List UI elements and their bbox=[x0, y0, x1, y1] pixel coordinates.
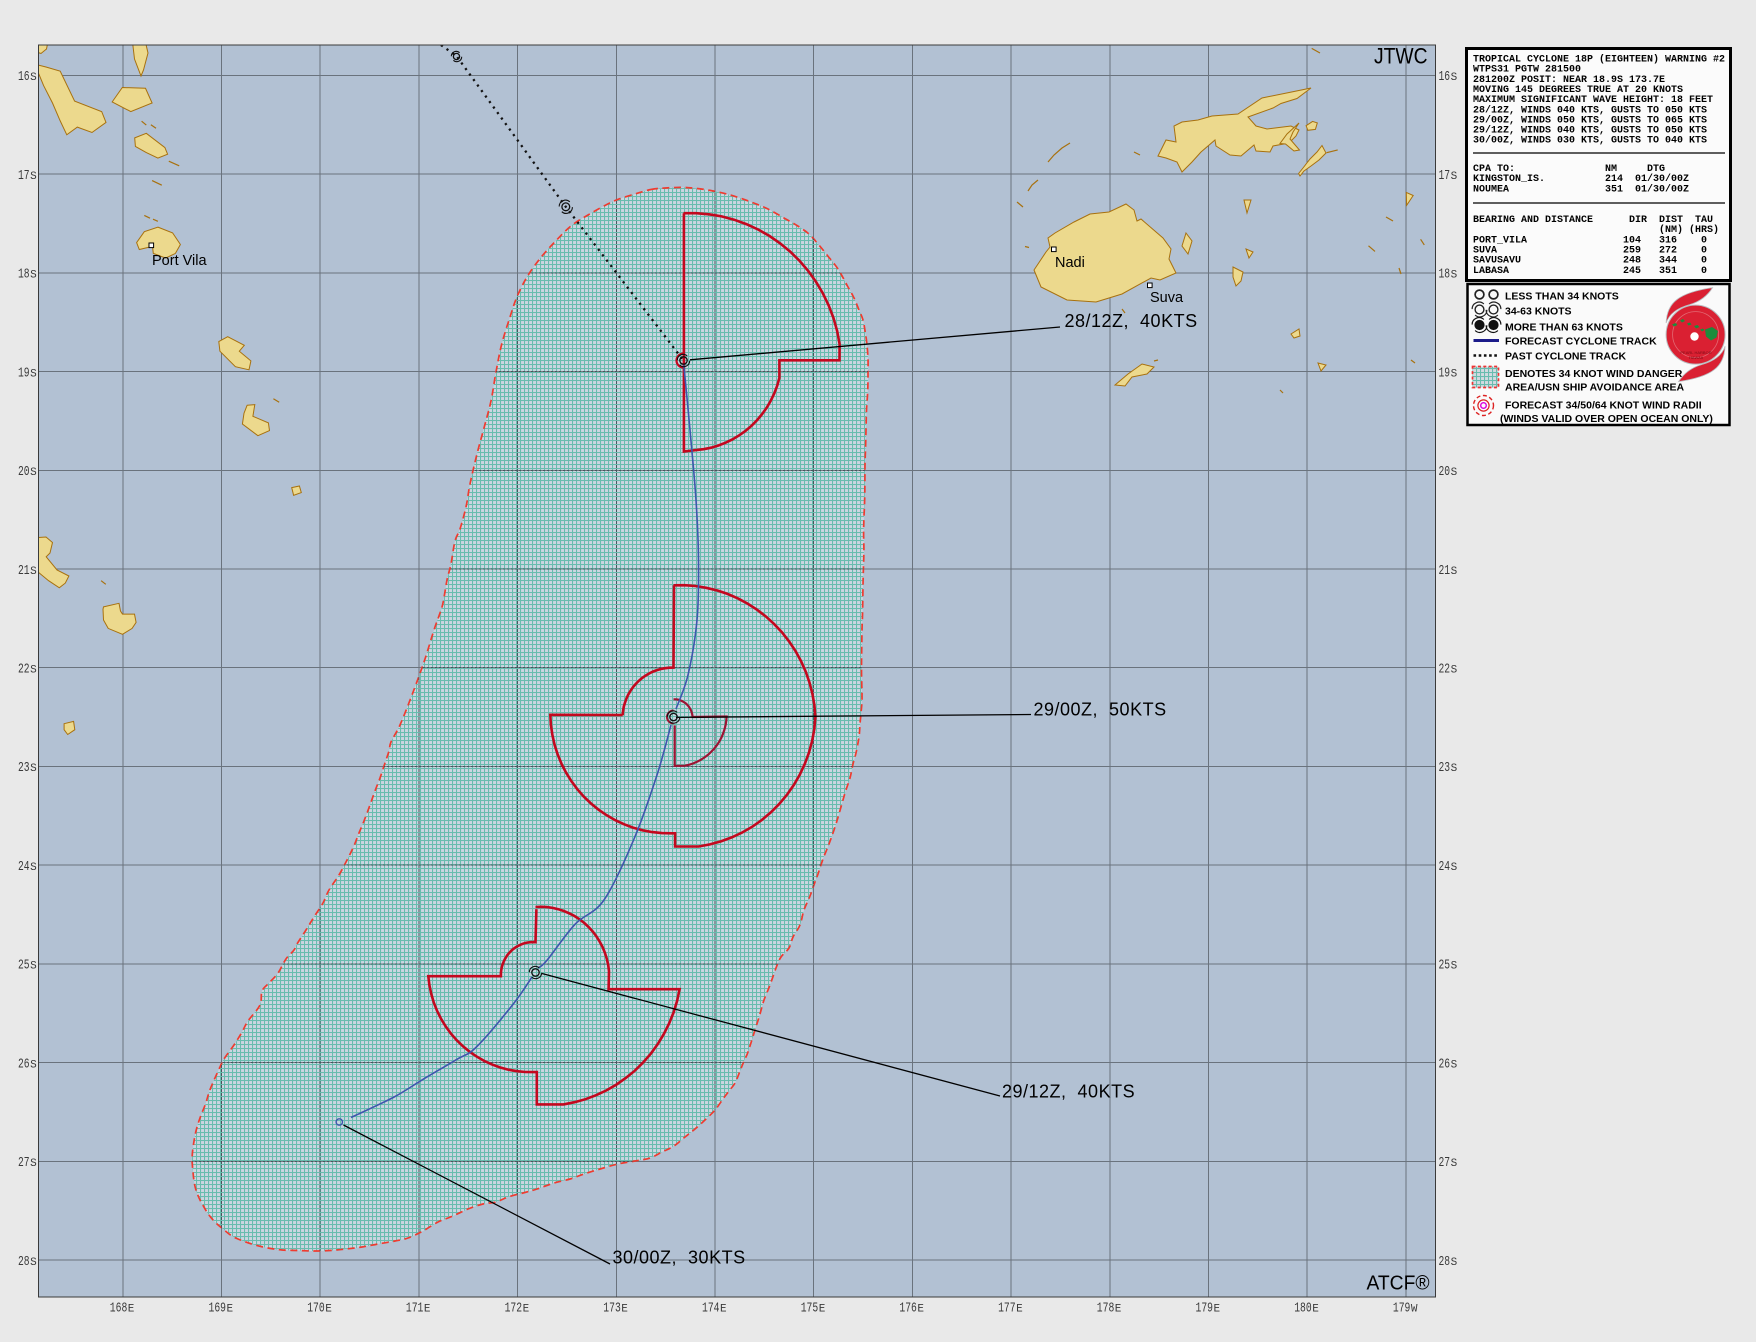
svg-text:30/00Z, WINDS 030 KTS, GUSTS T: 30/00Z, WINDS 030 KTS, GUSTS TO 040 KTS bbox=[1473, 135, 1707, 147]
svg-text:29/00Z, 50KTS: 29/00Z, 50KTS bbox=[1034, 700, 1167, 720]
svg-text:DENOTES 34 KNOT WIND DANGER: DENOTES 34 KNOT WIND DANGER bbox=[1505, 368, 1683, 380]
svg-text:25S: 25S bbox=[18, 958, 37, 974]
svg-text:Nadi: Nadi bbox=[1055, 255, 1085, 271]
svg-text:NOUMEA 351 01/: NOUMEA 351 01/30/00Z bbox=[1473, 183, 1689, 195]
svg-text:176E: 176E bbox=[899, 1301, 924, 1317]
svg-text:27S: 27S bbox=[18, 1155, 37, 1171]
svg-text:ATCF®: ATCF® bbox=[1367, 1273, 1430, 1295]
svg-text:Suva: Suva bbox=[1150, 290, 1184, 306]
svg-text:168E: 168E bbox=[110, 1301, 135, 1317]
svg-text:177E: 177E bbox=[998, 1301, 1023, 1317]
svg-text:18S: 18S bbox=[1439, 267, 1458, 283]
svg-text:MORE THAN 63 KNOTS: MORE THAN 63 KNOTS bbox=[1505, 322, 1623, 334]
svg-text:16S: 16S bbox=[18, 69, 37, 85]
svg-text:Port Vila: Port Vila bbox=[152, 253, 207, 269]
svg-text:LABASA 245: LABASA 245 351 0 bbox=[1473, 266, 1707, 277]
svg-text:PAST CYCLONE TRACK: PAST CYCLONE TRACK bbox=[1505, 351, 1627, 363]
svg-text:FORECAST CYCLONE TRACK: FORECAST CYCLONE TRACK bbox=[1505, 336, 1657, 348]
svg-text:34-63 KNOTS: 34-63 KNOTS bbox=[1505, 306, 1572, 318]
svg-text:26S: 26S bbox=[1439, 1056, 1458, 1072]
svg-text:25S: 25S bbox=[1439, 958, 1458, 974]
svg-text:178E: 178E bbox=[1097, 1301, 1122, 1317]
svg-text:TROPICAL CYCLONE 18P (EIGHTEEN: TROPICAL CYCLONE 18P (EIGHTEEN) WARNING … bbox=[1473, 54, 1725, 66]
svg-text:27S: 27S bbox=[1439, 1155, 1458, 1171]
svg-text:24S: 24S bbox=[18, 859, 37, 875]
svg-text:172E: 172E bbox=[505, 1301, 530, 1317]
svg-text:30/00Z, 30KTS: 30/00Z, 30KTS bbox=[613, 1248, 746, 1268]
svg-text:171E: 171E bbox=[406, 1301, 431, 1317]
svg-text:180E: 180E bbox=[1294, 1301, 1319, 1317]
svg-text:FORECAST 34/50/64 KNOT WIND RA: FORECAST 34/50/64 KNOT WIND RADII bbox=[1505, 400, 1702, 412]
svg-text:170E: 170E bbox=[307, 1301, 332, 1317]
svg-text:22S: 22S bbox=[1439, 662, 1458, 678]
svg-text:179W: 179W bbox=[1393, 1301, 1418, 1317]
svg-text:24S: 24S bbox=[1439, 859, 1458, 875]
svg-text:21S: 21S bbox=[18, 563, 37, 579]
svg-text:JTWC: JTWC bbox=[1374, 44, 1428, 69]
svg-text:19S: 19S bbox=[18, 365, 37, 381]
svg-text:LESS THAN 34 KNOTS: LESS THAN 34 KNOTS bbox=[1505, 291, 1619, 303]
svg-text:21S: 21S bbox=[1439, 563, 1458, 579]
svg-text:179E: 179E bbox=[1196, 1301, 1221, 1317]
svg-text:AREA/USN SHIP AVOIDANCE AREA: AREA/USN SHIP AVOIDANCE AREA bbox=[1505, 382, 1685, 394]
svg-text:18S: 18S bbox=[18, 267, 37, 283]
svg-text:HAWAII: HAWAII bbox=[1689, 355, 1703, 360]
svg-text:16S: 16S bbox=[1439, 69, 1458, 85]
svg-text:23S: 23S bbox=[18, 760, 37, 776]
svg-text:173E: 173E bbox=[603, 1301, 628, 1317]
svg-text:19S: 19S bbox=[1439, 365, 1458, 381]
svg-text:17S: 17S bbox=[1439, 168, 1458, 184]
svg-text:17S: 17S bbox=[18, 168, 37, 184]
svg-text:174E: 174E bbox=[702, 1301, 727, 1317]
svg-text:28S: 28S bbox=[18, 1254, 37, 1270]
svg-text:29/00Z, WINDS 050 KTS, GUSTS T: 29/00Z, WINDS 050 KTS, GUSTS TO 065 KTS bbox=[1473, 114, 1707, 126]
svg-text:22S: 22S bbox=[18, 662, 37, 678]
svg-text:29/12Z, 40KTS: 29/12Z, 40KTS bbox=[1002, 1082, 1135, 1102]
svg-text:28S: 28S bbox=[1439, 1254, 1458, 1270]
svg-text:20S: 20S bbox=[1439, 464, 1458, 480]
svg-text:169E: 169E bbox=[209, 1301, 234, 1317]
svg-text:26S: 26S bbox=[18, 1056, 37, 1072]
svg-text:175E: 175E bbox=[801, 1301, 826, 1317]
svg-text:28/12Z, 40KTS: 28/12Z, 40KTS bbox=[1065, 311, 1198, 331]
svg-text:(WINDS VALID OVER OPEN OCEAN O: (WINDS VALID OVER OPEN OCEAN ONLY) bbox=[1500, 413, 1713, 425]
svg-text:23S: 23S bbox=[1439, 760, 1458, 776]
svg-text:20S: 20S bbox=[18, 464, 37, 480]
